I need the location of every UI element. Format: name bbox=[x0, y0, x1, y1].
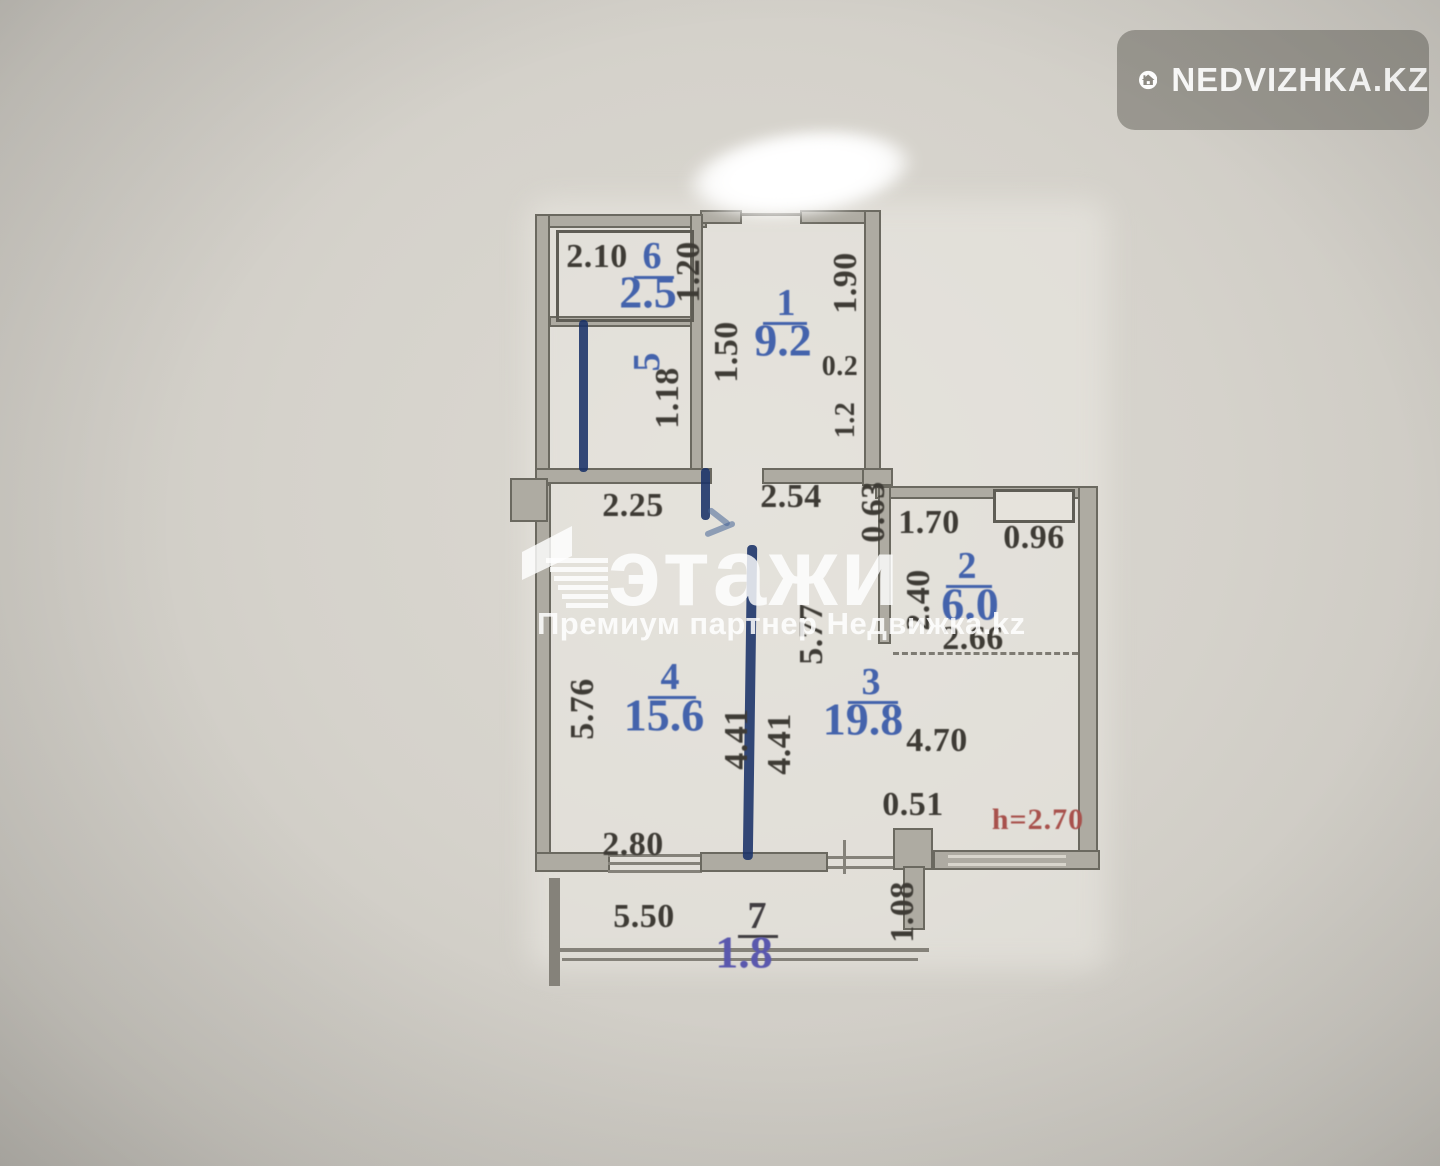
dim-label: 1.18 bbox=[649, 367, 687, 429]
dim-label: 5.50 bbox=[613, 898, 675, 936]
wall-segment bbox=[700, 852, 828, 872]
wall-segment bbox=[864, 210, 881, 486]
room-7-area: 1.8 bbox=[715, 926, 773, 979]
dim-label: 4.41 bbox=[761, 713, 799, 775]
window-line bbox=[948, 863, 1066, 866]
dim-label: 1.70 bbox=[898, 504, 960, 542]
balcony-door-line bbox=[828, 856, 895, 859]
nedvizhka-badge: NEDVIZHKA.KZ bbox=[1117, 30, 1429, 130]
dim-label: 1.2 bbox=[830, 402, 862, 439]
badge-label: NEDVIZHKA.KZ bbox=[1171, 61, 1429, 99]
room-6-area: 2.5 bbox=[619, 266, 677, 319]
marker-line bbox=[579, 320, 588, 472]
dim-label: 0.2 bbox=[822, 351, 859, 383]
room-3-area: 19.8 bbox=[823, 693, 904, 746]
dim-label: 2.54 bbox=[760, 478, 822, 516]
balcony-wall bbox=[549, 878, 560, 986]
dim-label: 1.50 bbox=[708, 321, 746, 383]
dim-label: 2.80 bbox=[602, 826, 664, 864]
dim-label: 5.76 bbox=[564, 678, 602, 740]
wall-segment bbox=[933, 850, 1100, 870]
room-5-number: 5 bbox=[625, 353, 669, 372]
dim-label: 1.08 bbox=[884, 881, 922, 943]
dim-label: 4.70 bbox=[906, 722, 968, 760]
ceiling-height-label: h=2.70 bbox=[992, 803, 1084, 837]
window-line bbox=[608, 870, 702, 873]
room-4-area: 15.6 bbox=[624, 689, 705, 742]
wall-pilaster bbox=[510, 478, 548, 522]
dim-label: 0.51 bbox=[882, 786, 944, 824]
window-line bbox=[948, 855, 1066, 858]
wall-column bbox=[893, 828, 933, 870]
door-jamb-tick bbox=[843, 840, 846, 874]
room-1-area: 9.2 bbox=[754, 314, 812, 367]
wall-segment bbox=[535, 468, 712, 484]
dim-label: 0.96 bbox=[1003, 519, 1065, 557]
wall-segment bbox=[535, 852, 610, 872]
home-icon bbox=[1139, 47, 1157, 113]
dim-label: 4.41 bbox=[718, 708, 756, 770]
window-niche bbox=[993, 489, 1075, 523]
watermark-subtitle: Премиум партнер Недвижка.kz bbox=[537, 606, 1026, 642]
dim-label: 1.90 bbox=[827, 252, 865, 314]
etazhi-logo-icon bbox=[520, 524, 612, 616]
wall-segment bbox=[535, 214, 550, 484]
balcony-door-line bbox=[828, 866, 895, 869]
floorplan-photo: 2.10 1.20 1.18 1.50 1.90 0.2 1.2 2.25 2.… bbox=[0, 0, 1440, 1166]
